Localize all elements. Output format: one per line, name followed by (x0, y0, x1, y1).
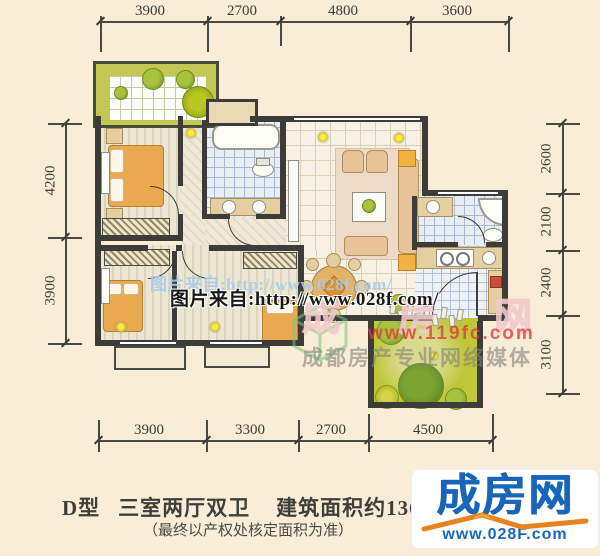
unit-layout: 三室两厅双卫 (118, 496, 250, 520)
sink2 (426, 200, 440, 214)
pillow (110, 178, 124, 202)
sink (252, 200, 266, 214)
dining-chair (326, 253, 341, 268)
dim-right-2: 2100 (539, 207, 556, 237)
window-bedroom2 (120, 342, 176, 344)
watermark-photo-credit-dark: 图片来自:http://www.028f.com/ (170, 284, 439, 311)
sink (222, 200, 236, 214)
dim-bottom-2: 3300 (235, 422, 265, 439)
sofa-small (344, 236, 388, 256)
unit-title: D型三室两厅双卫建筑面积约136m2 (62, 492, 446, 522)
wardrobe-master (102, 218, 170, 236)
plant-flower (116, 322, 126, 332)
dimension-line (100, 21, 508, 23)
dim-left-1: 4200 (43, 166, 60, 196)
bathtub (212, 124, 280, 150)
pillow (110, 149, 124, 173)
pillow (123, 283, 139, 295)
dim-right-4: 3100 (539, 340, 556, 370)
toilet2 (483, 228, 503, 242)
balcony-garden (93, 61, 219, 128)
dim-bottom-1: 3900 (134, 422, 164, 439)
plant-flower (318, 132, 328, 142)
nightstand (106, 128, 123, 144)
plant (114, 86, 128, 100)
dim-top-3: 4800 (328, 3, 358, 20)
kitchen-sink (482, 251, 496, 265)
plant-flower (394, 133, 404, 143)
logo-mountain-swoosh (420, 510, 590, 532)
dresser (101, 152, 110, 194)
unit-type: D型 (62, 496, 100, 520)
bay-window (114, 346, 186, 370)
plant-flower (210, 322, 220, 332)
site-logo: 成房网 www.028F.com (412, 470, 598, 548)
plant (142, 68, 164, 90)
desk (101, 268, 110, 304)
burner (440, 252, 454, 266)
window-bedroom3 (210, 342, 262, 344)
burner (456, 252, 470, 266)
watermark-media-slogan: 成都房产专业网络媒体 (302, 342, 532, 372)
armchair (366, 150, 388, 173)
bay-window (204, 346, 270, 368)
area-disclaimer: （最终以产权处核定面积为准） (118, 519, 378, 540)
tv-cabinet (288, 160, 299, 242)
dim-right-1: 2600 (539, 144, 556, 174)
dim-bottom-3: 2700 (316, 422, 346, 439)
dim-left-2: 3900 (43, 276, 60, 306)
dim-top-2: 2700 (227, 3, 257, 20)
window-living (294, 118, 420, 120)
wardrobe-bedroom3 (243, 252, 297, 269)
table-plant (362, 199, 376, 213)
dim-top-1: 3900 (135, 3, 165, 20)
dim-bottom-4: 4500 (413, 422, 443, 439)
side-table (398, 254, 416, 271)
dim-top-4: 3600 (442, 3, 472, 20)
side-table (398, 150, 416, 167)
armchair (342, 150, 364, 173)
toilet-tank (256, 158, 270, 166)
window-bath2 (438, 192, 498, 194)
plant-flower (186, 128, 196, 138)
floorplan-image: 3900 2700 4800 3600 3900 3300 2700 4500 … (0, 0, 600, 556)
